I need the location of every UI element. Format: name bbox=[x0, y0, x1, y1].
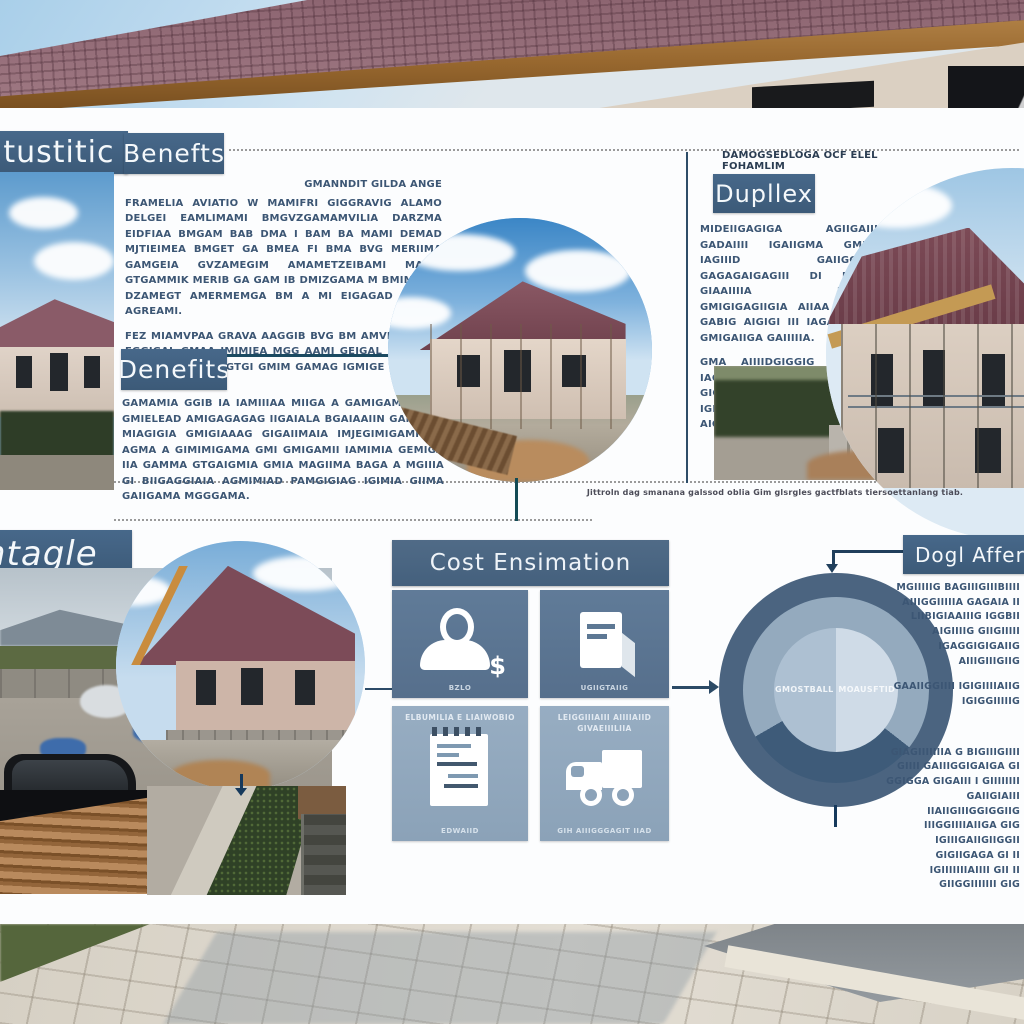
ground bbox=[0, 455, 114, 490]
benefits-intro-line: GMANNDIT GILDA ANGE bbox=[125, 177, 442, 193]
arrow-down-icon bbox=[826, 564, 838, 573]
connector-chart-down bbox=[834, 805, 837, 827]
photo-pavement-band bbox=[0, 924, 1024, 1024]
section-title-nitustitic-label: nitustitic bbox=[0, 135, 114, 170]
truck-box bbox=[602, 750, 642, 788]
section-title-denefits-label: Denefits bbox=[121, 355, 227, 384]
cloud bbox=[841, 183, 953, 228]
connector-denefits-to-photo bbox=[227, 354, 395, 357]
paving-shadow bbox=[163, 932, 716, 1024]
dogl-paragraph-2: GAAIIGGIIII IGIGIIIIAIIG IGIGGIIIIIG bbox=[880, 680, 1020, 709]
tile-label: UGIIGTAIIG bbox=[544, 684, 665, 692]
cloud bbox=[253, 556, 358, 591]
arrow-down-icon bbox=[235, 788, 247, 796]
notepad-line bbox=[437, 744, 471, 748]
notepad-line bbox=[448, 774, 478, 778]
cost-tile-permits: UGIIGTAIIG bbox=[540, 590, 669, 698]
section-title-dogl: Dogl Afferca bbox=[903, 535, 1024, 574]
cloud bbox=[9, 197, 77, 229]
truck-wheel bbox=[612, 784, 634, 806]
photo-roof-band bbox=[0, 0, 1024, 112]
section-title-nitustitic: nitustitic bbox=[0, 131, 128, 174]
document-line bbox=[587, 624, 615, 629]
duplex-caption: Jittroln dag smanana galssod oblia Gim g… bbox=[540, 488, 1010, 497]
cost-estimation-title: Cost Ensimation bbox=[430, 550, 631, 576]
truck-window bbox=[571, 766, 584, 777]
cost-tile-labor: $ BZLO bbox=[392, 590, 528, 698]
photo-hedge-fence bbox=[147, 786, 346, 895]
photo-construction-circle bbox=[388, 218, 652, 482]
dotted-divider-lower bbox=[114, 519, 592, 521]
connector-banner-to-chart-vertical bbox=[832, 550, 835, 565]
dollar-sign: $ bbox=[489, 652, 506, 680]
house-window bbox=[84, 356, 100, 388]
dogl-paragraph-3: GIAGIIIIIIIA G BIGIIIGIIII GIIII GAIIIGG… bbox=[880, 746, 1020, 893]
infographic-poster: nitustitic Benefts GMANNDIT GILDA ANGE F… bbox=[0, 0, 1024, 1024]
cost-tile-delivery: LEIGGIIIAIII AIIIIAIID GIVAEIIILIIA GIH … bbox=[540, 706, 669, 841]
section-title-dogl-label: Dogl Afferca bbox=[915, 543, 1024, 567]
document-icon bbox=[580, 612, 622, 668]
notepad-line bbox=[437, 753, 459, 757]
cost-tile-materials: ELBUMILIA E LIAIWOBIO EDWAIID bbox=[392, 706, 528, 841]
scaffolding bbox=[430, 324, 625, 430]
tile-label: EDWAIID bbox=[396, 827, 524, 835]
section-title-duplex: Dupllex bbox=[713, 174, 815, 213]
scaffolding bbox=[841, 324, 1024, 488]
dogl-paragraph-1: MGIIIIIG BAGIIIGIIIBIIII AIIIGGIIIIIA GA… bbox=[880, 581, 1020, 669]
person-body bbox=[420, 640, 490, 670]
donut-label-left: GMOSTBALL bbox=[775, 685, 834, 694]
photo-house-left bbox=[0, 172, 114, 490]
tile-label: GIH AIIIGGGAGIT IIAD bbox=[544, 827, 665, 835]
cost-estimation-header: Cost Ensimation bbox=[392, 540, 669, 586]
section-title-denefits: Denefits bbox=[121, 349, 227, 390]
section-title-benefits-label: Benefts bbox=[124, 139, 224, 168]
notepad-fringe bbox=[432, 727, 486, 736]
photo-house-circle-bottom bbox=[116, 541, 365, 790]
connector-photo-down bbox=[515, 478, 518, 521]
tile-label-top: LEIGGIIIAIII AIIIIAIID GIVAEIIILIIA bbox=[546, 713, 663, 734]
section-title-benefits: Benefts bbox=[124, 133, 224, 174]
cloud bbox=[525, 250, 631, 292]
truck-icon bbox=[566, 750, 642, 802]
truck-wheel bbox=[580, 784, 602, 806]
house-window bbox=[50, 353, 68, 391]
house-window bbox=[16, 356, 32, 388]
cloud bbox=[34, 242, 114, 280]
house-window bbox=[241, 668, 263, 705]
notepad-line bbox=[437, 762, 477, 766]
concrete-fence bbox=[301, 814, 346, 895]
hedge bbox=[0, 411, 114, 459]
cloud bbox=[404, 234, 515, 271]
photo-duplex-house-circle bbox=[826, 168, 1024, 540]
connector-photo-to-tiles bbox=[365, 688, 392, 690]
section-title-duplex-label: Dupllex bbox=[715, 180, 813, 208]
duplex-left-border-line bbox=[686, 152, 688, 483]
connector-banner-to-chart-horizontal bbox=[833, 550, 905, 553]
house-window bbox=[295, 670, 315, 705]
arrow-to-chart-line bbox=[672, 686, 710, 689]
document-fold bbox=[622, 633, 635, 677]
house-window bbox=[196, 670, 216, 705]
document-line bbox=[587, 634, 607, 639]
notepad-icon bbox=[430, 734, 488, 806]
arrow-down-stem bbox=[240, 774, 243, 789]
person-dollar-icon: $ bbox=[420, 608, 490, 670]
arrow-to-chart-icon bbox=[709, 680, 719, 694]
notepad-line bbox=[444, 784, 478, 788]
house-window bbox=[948, 66, 1024, 112]
dogl-paragraphs: MGIIIIIG BAGIIIGIIIBIIII AIIIGGIIIIIA GA… bbox=[880, 581, 1020, 902]
tile-label: BZLO bbox=[396, 684, 524, 692]
tile-label-top: ELBUMILIA E LIAIWOBIO bbox=[398, 713, 522, 724]
